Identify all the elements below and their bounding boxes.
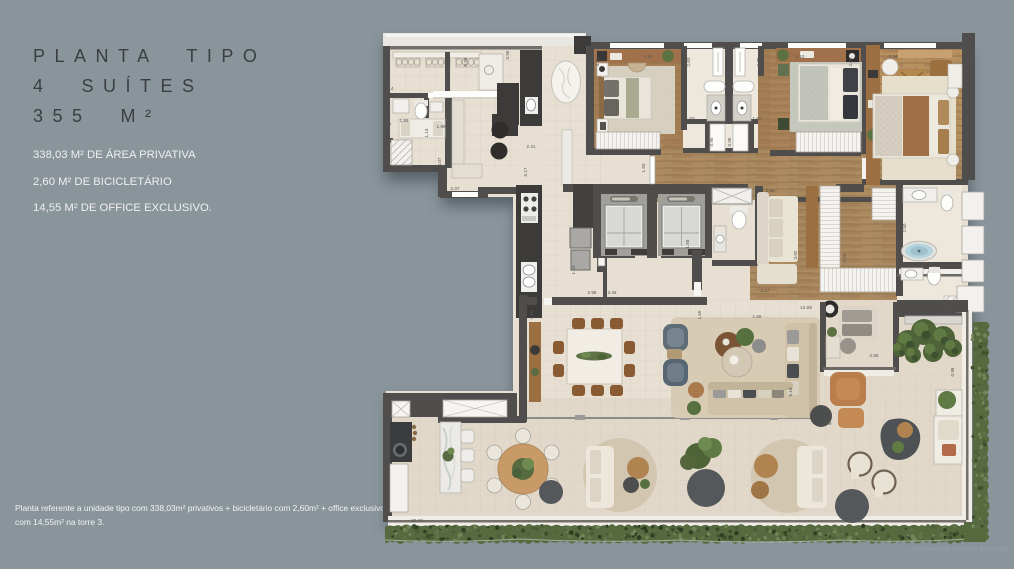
svg-text:4.07: 4.07 — [437, 157, 442, 166]
svg-text:2.47: 2.47 — [940, 310, 949, 315]
svg-text:1.27: 1.27 — [761, 288, 770, 293]
svg-text:3.73: 3.73 — [595, 57, 600, 66]
svg-text:14,55 M² DE OFFICE EXCLUSIVO.: 14,55 M² DE OFFICE EXCLUSIVO. — [33, 202, 212, 214]
svg-text:Planta referente a unidade tip: Planta referente a unidade tipo com 338,… — [15, 503, 385, 513]
svg-text:1.99: 1.99 — [400, 118, 409, 123]
svg-text:1.03: 1.03 — [571, 265, 576, 274]
svg-text:1.55: 1.55 — [697, 310, 702, 319]
svg-text:2.47: 2.47 — [945, 336, 954, 341]
svg-text:1.13: 1.13 — [424, 128, 429, 137]
svg-text:4.34: 4.34 — [889, 54, 898, 59]
svg-text:4.10: 4.10 — [529, 310, 534, 319]
svg-text:2,60 M² DE BICICLETÁRIO: 2,60 M² DE BICICLETÁRIO — [33, 175, 172, 188]
svg-text:0.95: 0.95 — [727, 137, 732, 146]
svg-text:2.41: 2.41 — [527, 144, 536, 149]
svg-text:3.10: 3.10 — [796, 54, 805, 59]
svg-text:0.95: 0.95 — [709, 137, 714, 146]
svg-text:3.10: 3.10 — [644, 54, 653, 59]
svg-text:1.50: 1.50 — [753, 116, 762, 121]
svg-text:0.95: 0.95 — [463, 57, 468, 66]
svg-text:1.93: 1.93 — [641, 163, 646, 172]
svg-text:PLANTA TIPO: PLANTA TIPO — [33, 46, 266, 66]
svg-text:338,03 M² DE ÁREA PRIVATIVA: 338,03 M² DE ÁREA PRIVATIVA — [33, 148, 196, 161]
svg-text:0.95: 0.95 — [505, 50, 510, 59]
svg-text:5.17: 5.17 — [523, 167, 528, 176]
svg-text:4.14: 4.14 — [385, 86, 394, 91]
svg-text:5.19: 5.19 — [788, 387, 793, 396]
svg-text:1.99: 1.99 — [437, 124, 446, 129]
svg-text:12.69: 12.69 — [800, 305, 812, 310]
svg-text:1.56: 1.56 — [753, 314, 762, 319]
svg-text:2.05: 2.05 — [842, 253, 847, 262]
svg-text:2.55: 2.55 — [870, 353, 879, 358]
svg-text:0.98: 0.98 — [950, 367, 955, 376]
svg-text:1.67: 1.67 — [383, 122, 392, 127]
svg-text:1.58: 1.58 — [685, 239, 690, 248]
svg-text:3.75: 3.75 — [756, 57, 761, 66]
svg-text:2.98: 2.98 — [588, 290, 597, 295]
svg-text:2.63: 2.63 — [848, 57, 853, 66]
svg-text:3.46: 3.46 — [608, 290, 617, 295]
svg-text:perspectiva artistica ilustrad: perspectiva artistica ilustrada — [911, 544, 1009, 553]
svg-text:355 M²: 355 M² — [33, 106, 161, 126]
svg-text:2.37: 2.37 — [451, 186, 460, 191]
svg-text:2.50: 2.50 — [902, 223, 907, 232]
svg-text:4 SUÍTES: 4 SUÍTES — [33, 76, 204, 96]
svg-text:20.33: 20.33 — [411, 518, 423, 523]
svg-text:2.63: 2.63 — [686, 57, 691, 66]
svg-text:com 14,55m² na torre 3.: com 14,55m² na torre 3. — [15, 517, 104, 527]
svg-text:2.40: 2.40 — [766, 188, 775, 193]
svg-text:1.50: 1.50 — [686, 116, 695, 121]
svg-text:3.92: 3.92 — [793, 250, 798, 259]
svg-text:1.58: 1.58 — [597, 239, 602, 248]
svg-text:5.09: 5.09 — [823, 421, 832, 426]
